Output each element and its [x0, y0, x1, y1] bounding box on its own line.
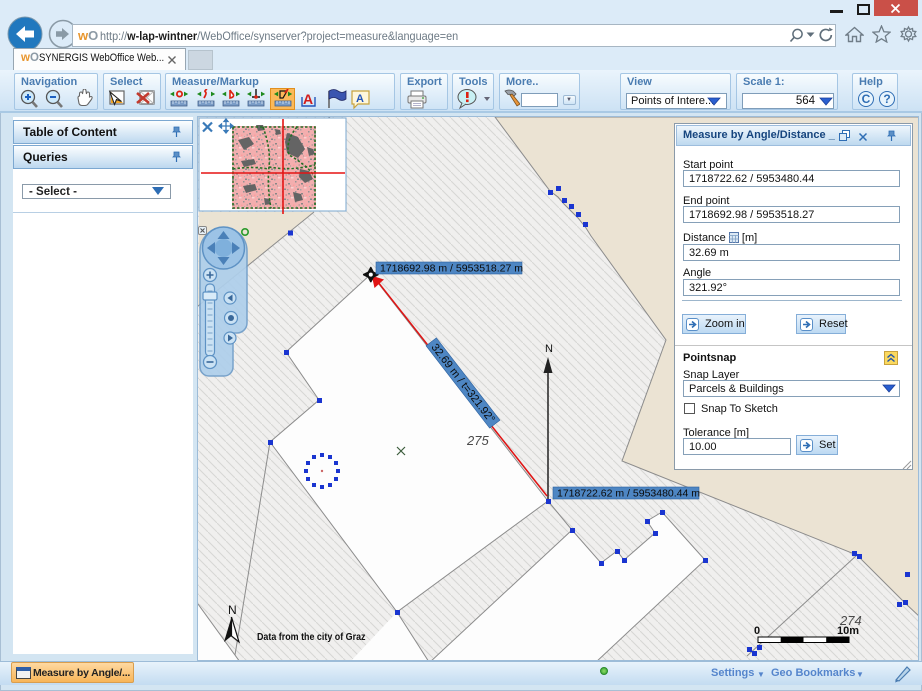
svg-text:275: 275 [466, 433, 489, 448]
svg-text:1718692.98 m / 5953518.27 m: 1718692.98 m / 5953518.27 m [380, 263, 523, 275]
svg-text:N: N [545, 343, 553, 355]
svg-text:A: A [303, 91, 313, 107]
svg-text:Data from the city of Graz: Data from the city of Graz [257, 631, 366, 643]
svg-text:1718722.62 m / 5953480.44 m: 1718722.62 m / 5953480.44 m [557, 488, 700, 500]
svg-text:10m: 10m [837, 625, 859, 637]
svg-text:N: N [228, 603, 237, 617]
svg-text:0: 0 [754, 625, 760, 637]
svg-text:A: A [356, 93, 364, 105]
